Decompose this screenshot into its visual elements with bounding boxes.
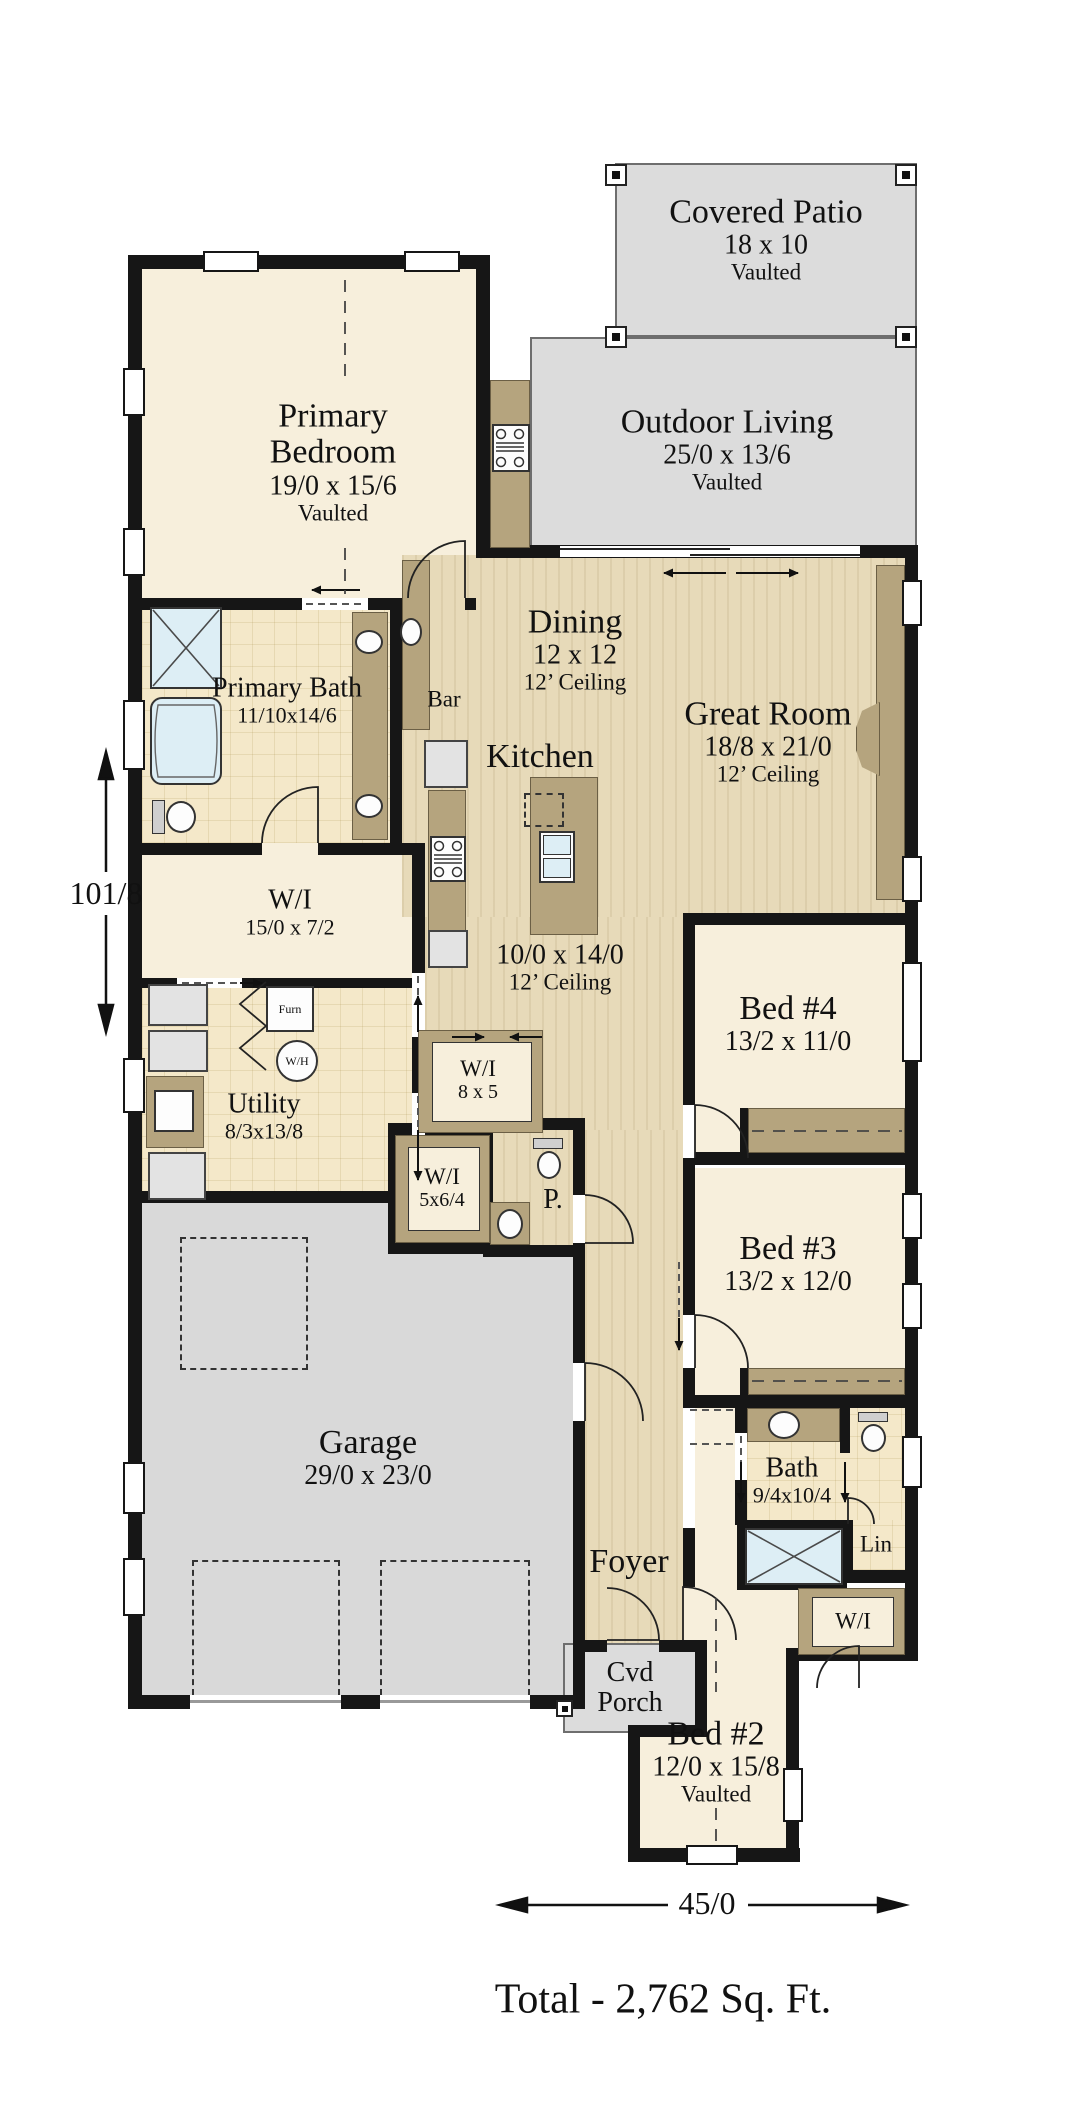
- label-covered-patio: Covered Patio 18 x 10 Vaulted: [646, 195, 886, 286]
- room-name: Furn: [268, 1003, 312, 1015]
- floor-plan: Covered Patio 18 x 10 Vaulted Outdoor Li…: [0, 0, 1082, 2109]
- room-size: 13/2 x 12/0: [673, 1267, 903, 1297]
- room-name: W/H: [277, 1055, 317, 1067]
- room-size: 8 x 5: [423, 1082, 533, 1103]
- dimension-width-text: 45/0: [652, 1886, 762, 1920]
- powder-door: [585, 1195, 633, 1243]
- room-name: Primary Bedroom: [228, 398, 438, 471]
- room-note: Vaulted: [646, 261, 886, 286]
- garage-entry-door: [585, 1363, 643, 1421]
- room-name: Dining: [480, 605, 670, 641]
- room-note: Vaulted: [228, 501, 438, 526]
- primary-bedroom-door: [408, 541, 465, 598]
- room-name: Garage: [228, 1425, 508, 1461]
- room-name: Bed #2: [586, 1717, 846, 1753]
- plan-symbols: [0, 0, 1082, 2109]
- total-area-text: Total - 2,762 Sq. Ft.: [383, 1978, 943, 2023]
- room-size: 18/8 x 21/0: [673, 733, 863, 763]
- label-bed4: Bed #4 13/2 x 11/0: [673, 991, 903, 1057]
- room-name: W/I: [423, 1057, 533, 1082]
- room-size: 11/10x14/6: [207, 703, 367, 727]
- depth-value: 101/8: [46, 876, 166, 910]
- label-garage: Garage 29/0 x 23/0: [228, 1425, 508, 1491]
- wi-bed2-door: [817, 1646, 859, 1688]
- room-size: 13/2 x 11/0: [673, 1027, 903, 1057]
- room-size: 18 x 10: [646, 231, 886, 261]
- room-size: 9/4x10/4: [722, 1483, 862, 1507]
- front-door: [607, 1588, 659, 1640]
- label-water-heater: W/H: [277, 1055, 317, 1067]
- width-value: 45/0: [652, 1886, 762, 1920]
- label-great-room: Great Room 18/8 x 21/0 12’ Ceiling: [673, 697, 863, 788]
- label-primary-bedroom: Primary Bedroom 19/0 x 15/6 Vaulted: [228, 398, 438, 525]
- label-wi-bed2: W/I: [818, 1610, 888, 1635]
- room-size: 8/3x13/8: [179, 1119, 349, 1143]
- label-primary-bath: Primary Bath 11/10x14/6: [207, 673, 367, 726]
- label-foyer: Foyer: [559, 1544, 699, 1580]
- room-note: 12’ Ceiling: [440, 971, 680, 996]
- room-name: W/I: [205, 885, 375, 915]
- label-outdoor-living: Outdoor Living 25/0 x 13/6 Vaulted: [577, 405, 877, 496]
- label-bed2: Bed #2 12/0 x 15/8 Vaulted: [586, 1717, 846, 1808]
- grill-burners-icon: [496, 430, 524, 467]
- room-name: Cvd Porch: [585, 1658, 675, 1718]
- room-size: 19/0 x 15/6: [228, 471, 438, 501]
- label-bar: Bar: [409, 688, 479, 713]
- room-name: Bath: [722, 1453, 862, 1483]
- room-name: Bar: [409, 688, 479, 713]
- label-kitchen-size: 10/0 x 14/0 12’ Ceiling: [440, 941, 680, 996]
- room-size: 12 x 12: [480, 641, 670, 671]
- label-furnace: Furn: [268, 1003, 312, 1015]
- bed2-door: [683, 1587, 736, 1640]
- label-wi-primary: W/I 15/0 x 7/2: [205, 885, 375, 938]
- bed4-door: [695, 1105, 748, 1158]
- label-bed3: Bed #3 13/2 x 12/0: [673, 1231, 903, 1297]
- room-name: Lin: [846, 1533, 906, 1558]
- room-size: 29/0 x 23/0: [228, 1461, 508, 1491]
- bed3-door: [695, 1315, 748, 1368]
- label-dining: Dining 12 x 12 12’ Ceiling: [480, 605, 670, 696]
- dimension-depth-text: 101/8: [46, 876, 166, 910]
- label-kitchen-name: Kitchen: [450, 739, 630, 775]
- label-wi-hall: W/I 8 x 5: [423, 1057, 533, 1103]
- room-note: Vaulted: [577, 471, 877, 496]
- room-name: Primary Bath: [207, 673, 367, 703]
- room-name: Bed #4: [673, 991, 903, 1027]
- room-size: 12/0 x 15/8: [586, 1753, 846, 1783]
- room-name: W/I: [392, 1165, 492, 1190]
- room-name: Outdoor Living: [577, 405, 877, 441]
- primary-wic-door: [262, 787, 318, 843]
- total-area-value: Total - 2,762 Sq. Ft.: [383, 1978, 943, 2023]
- room-size: 25/0 x 13/6: [577, 441, 877, 471]
- label-bath2: Bath 9/4x10/4: [722, 1453, 862, 1506]
- range-burners-icon: [434, 842, 462, 877]
- label-powder: P.: [528, 1185, 578, 1215]
- room-name: P.: [528, 1185, 578, 1215]
- pocket-door-dashes: [182, 604, 741, 1477]
- room-name: Utility: [179, 1089, 349, 1119]
- room-size: 10/0 x 14/0: [440, 941, 680, 971]
- room-name: Great Room: [673, 697, 863, 733]
- room-note: Vaulted: [586, 1783, 846, 1808]
- room-name: Foyer: [559, 1544, 699, 1580]
- room-name: Kitchen: [450, 739, 630, 775]
- room-size: 15/0 x 7/2: [205, 915, 375, 939]
- room-name: Bed #3: [673, 1231, 903, 1267]
- label-wi-small: W/I 5x6/4: [392, 1165, 492, 1211]
- room-size: 5x6/4: [392, 1190, 492, 1211]
- label-utility: Utility 8/3x13/8: [179, 1089, 349, 1142]
- bifold-doors-icon: [240, 982, 266, 1070]
- tub2-x-icon: [748, 1531, 840, 1582]
- room-note: 12’ Ceiling: [673, 763, 863, 788]
- room-note: 12’ Ceiling: [480, 671, 670, 696]
- room-name: W/I: [818, 1610, 888, 1635]
- label-linen: Lin: [846, 1533, 906, 1558]
- label-cvd-porch: Cvd Porch: [585, 1658, 675, 1718]
- room-name: Covered Patio: [646, 195, 886, 231]
